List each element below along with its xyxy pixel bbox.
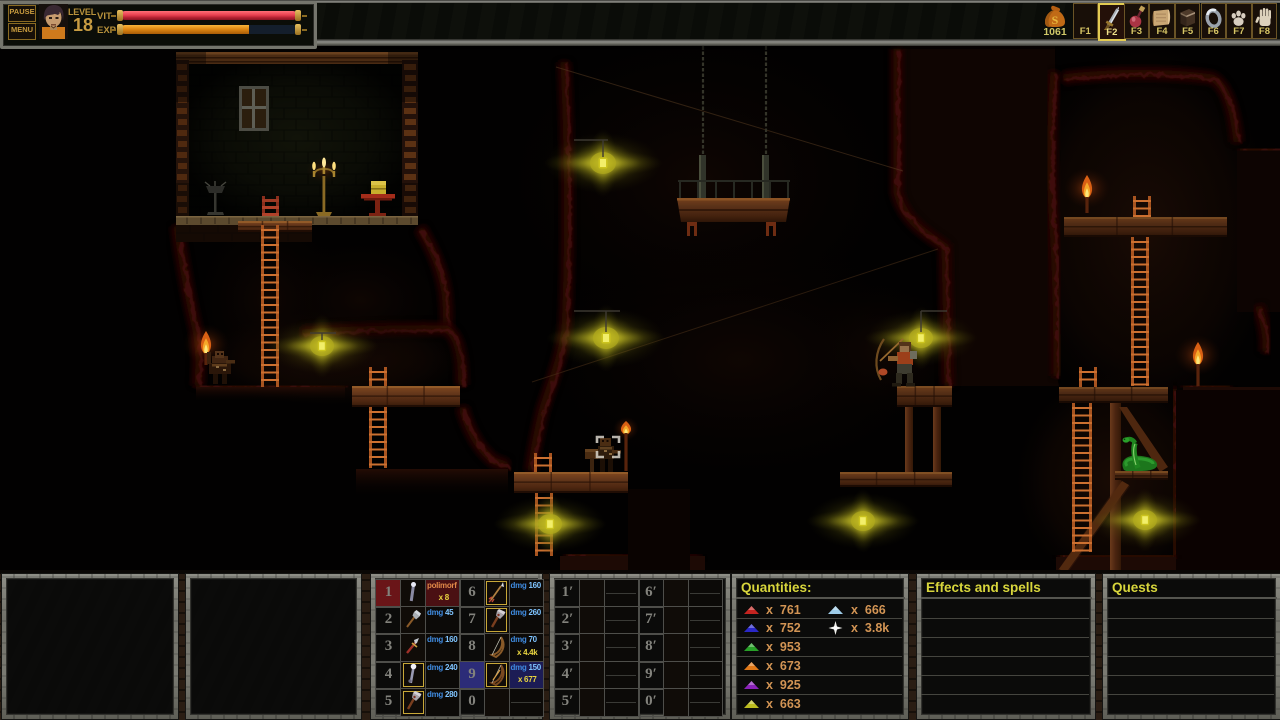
svg-text:S: S: [1052, 13, 1059, 27]
